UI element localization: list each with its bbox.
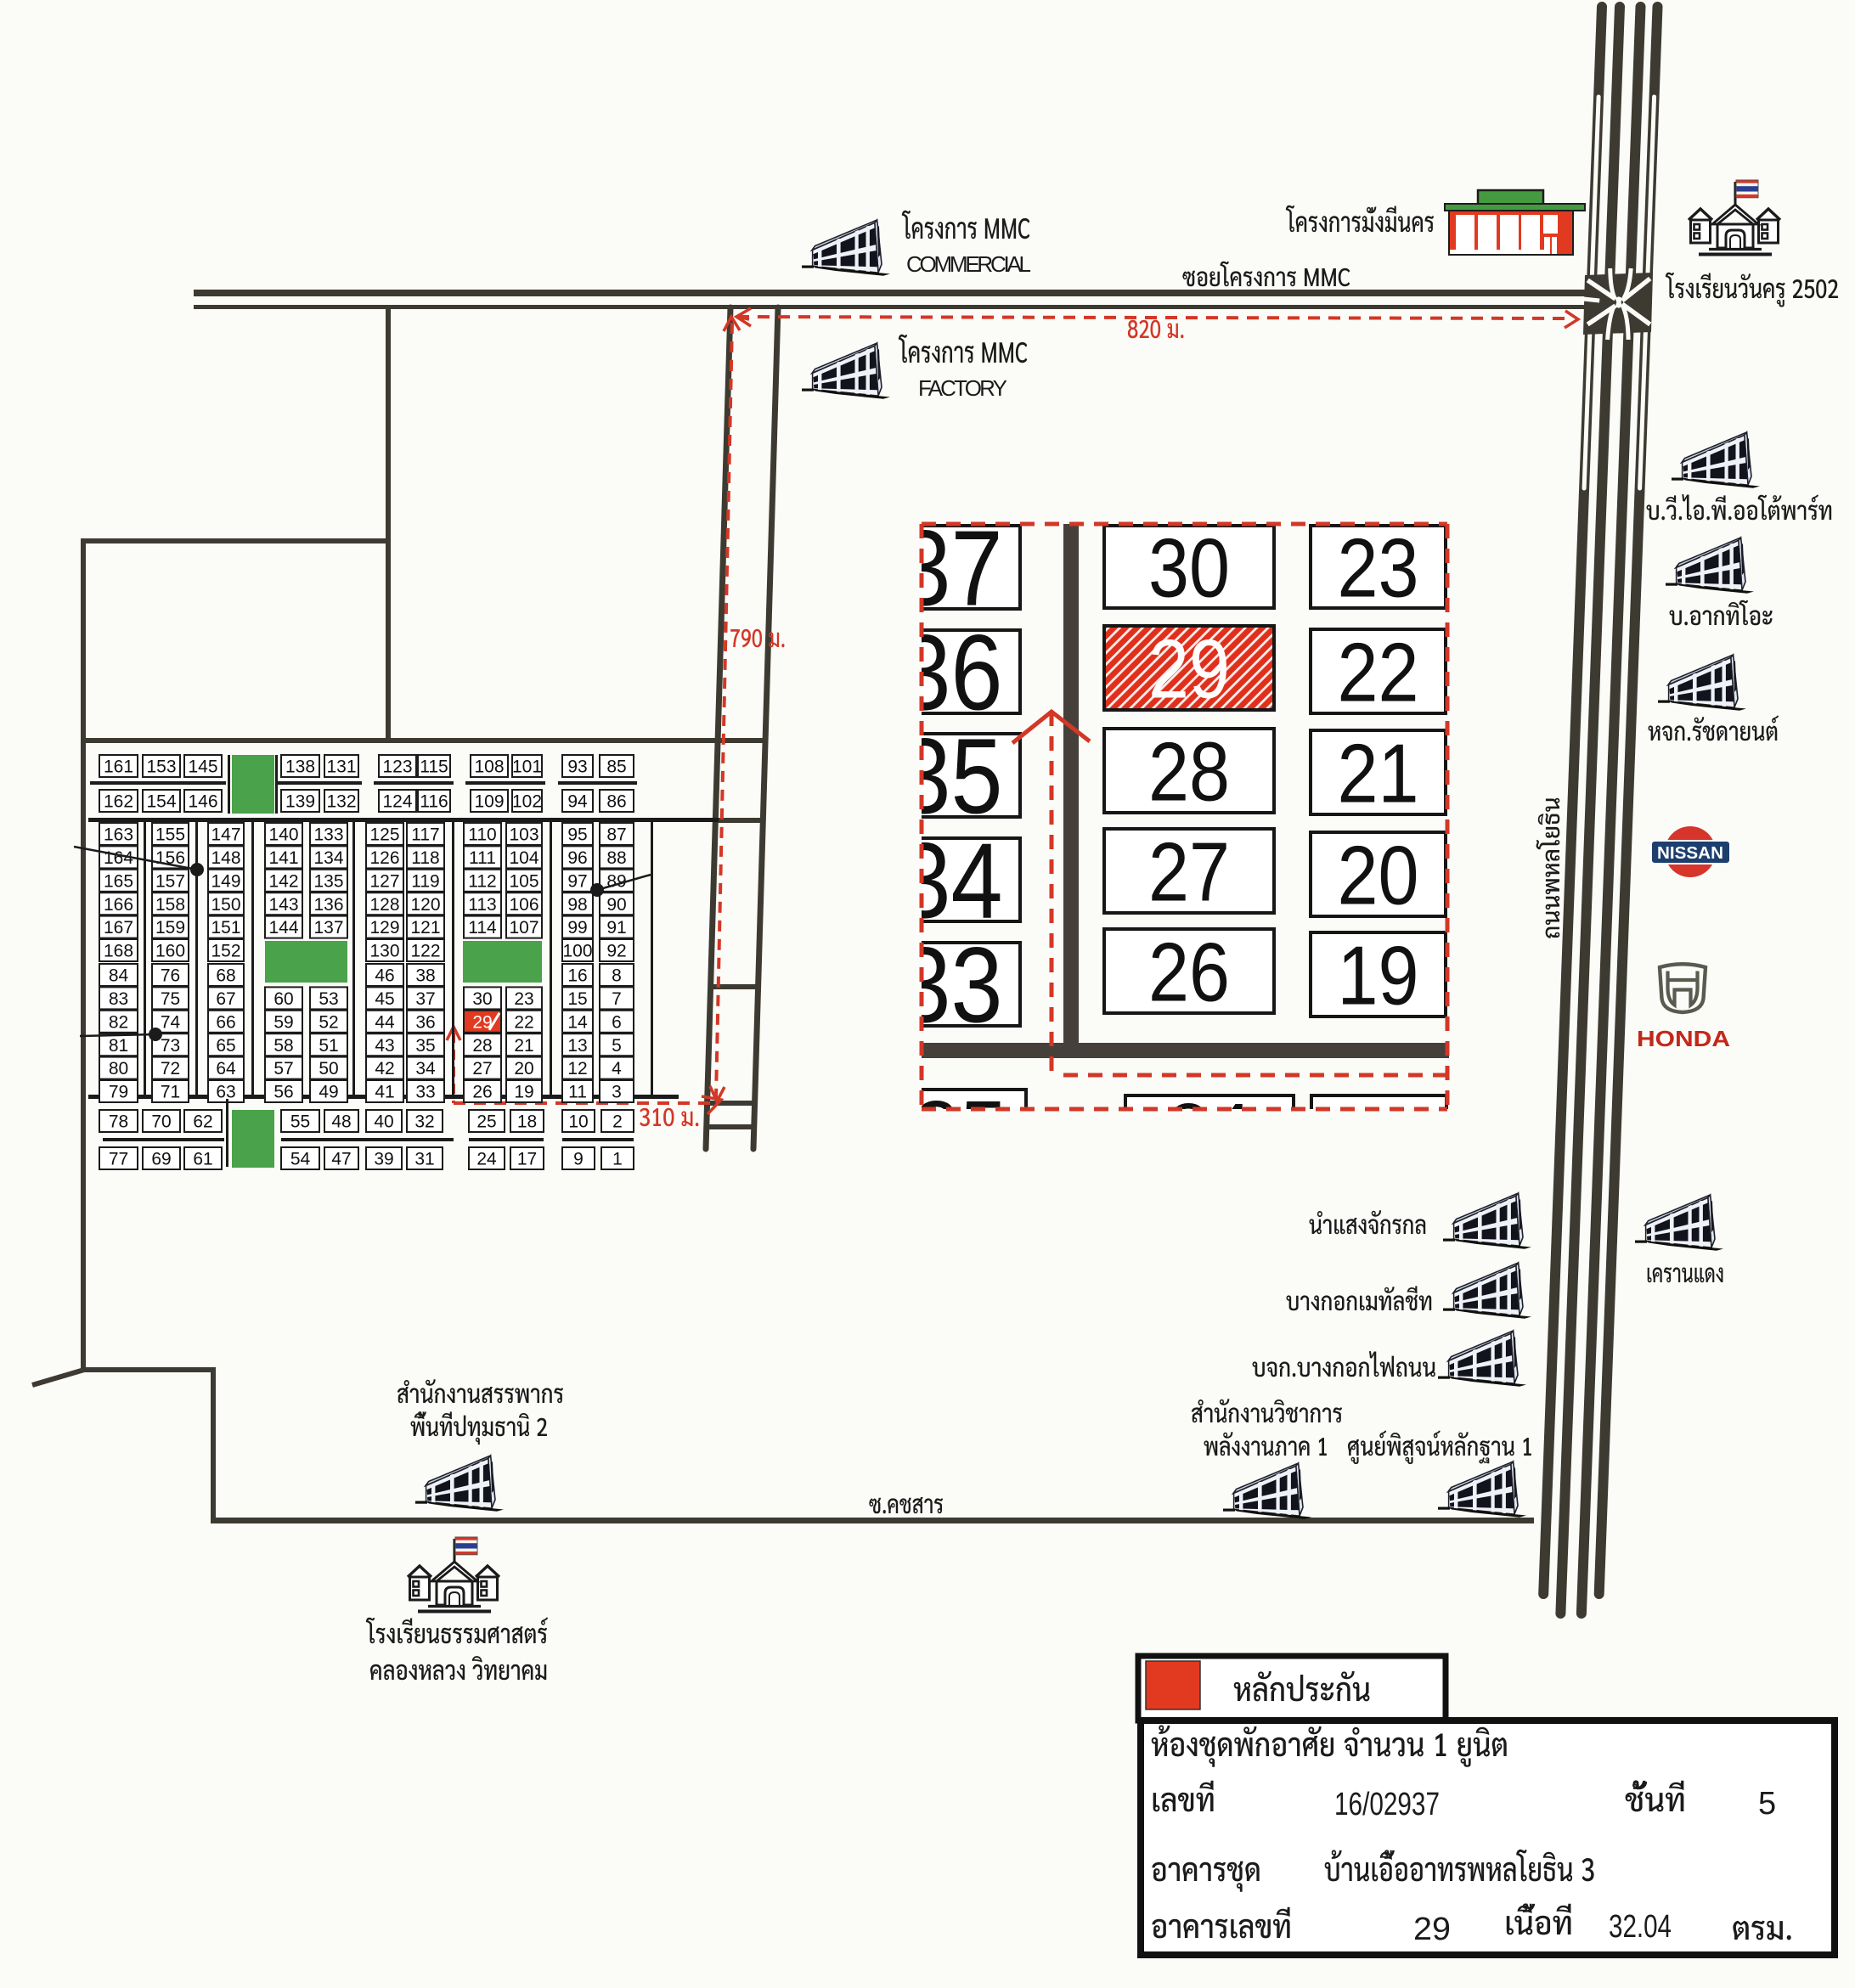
svg-text:102: 102	[512, 792, 542, 812]
svg-text:24: 24	[476, 1150, 497, 1169]
svg-text:163: 163	[104, 825, 133, 845]
svg-text:143: 143	[268, 895, 298, 915]
svg-text:30: 30	[1148, 521, 1230, 614]
svg-text:28: 28	[1148, 724, 1230, 818]
svg-text:54: 54	[290, 1150, 311, 1169]
svg-text:34: 34	[415, 1059, 436, 1078]
svg-text:61: 61	[193, 1150, 212, 1169]
svg-text:82: 82	[109, 1012, 128, 1032]
svg-text:22: 22	[1338, 625, 1419, 718]
svg-text:94: 94	[567, 792, 588, 812]
svg-text:8: 8	[612, 966, 622, 986]
svg-text:153: 153	[146, 757, 176, 777]
svg-text:71: 71	[161, 1083, 180, 1102]
svg-text:19: 19	[1338, 928, 1419, 1022]
svg-text:27: 27	[472, 1059, 492, 1078]
svg-text:149: 149	[211, 871, 240, 891]
svg-text:26: 26	[472, 1083, 492, 1102]
svg-text:161: 161	[104, 757, 133, 777]
svg-text:70: 70	[151, 1112, 171, 1132]
svg-text:67: 67	[216, 989, 235, 1009]
svg-text:26: 26	[1148, 925, 1230, 1018]
svg-text:28: 28	[472, 1036, 492, 1056]
svg-text:23: 23	[514, 989, 533, 1009]
svg-text:164: 164	[104, 848, 133, 868]
svg-text:105: 105	[509, 871, 538, 891]
svg-text:107: 107	[509, 918, 538, 938]
svg-text:25: 25	[476, 1112, 496, 1132]
svg-text:91: 91	[606, 918, 626, 938]
svg-text:96: 96	[567, 848, 587, 868]
svg-text:126: 126	[369, 848, 399, 868]
svg-text:20: 20	[1338, 828, 1419, 921]
svg-text:19: 19	[514, 1083, 533, 1102]
svg-text:118: 118	[411, 848, 439, 868]
svg-text:5: 5	[612, 1036, 622, 1056]
svg-text:111: 111	[469, 848, 496, 868]
svg-text:55: 55	[290, 1112, 310, 1132]
svg-text:68: 68	[216, 966, 235, 986]
svg-text:133: 133	[313, 825, 343, 845]
svg-text:51: 51	[319, 1036, 338, 1056]
svg-text:32: 32	[414, 1112, 434, 1132]
svg-text:160: 160	[155, 942, 185, 961]
svg-text:122: 122	[410, 942, 440, 961]
svg-text:62: 62	[193, 1112, 212, 1132]
svg-text:113: 113	[468, 895, 496, 915]
svg-text:86: 86	[606, 792, 626, 812]
svg-text:112: 112	[468, 871, 496, 891]
svg-text:165: 165	[104, 871, 133, 891]
svg-text:15: 15	[567, 989, 587, 1009]
svg-text:37: 37	[415, 989, 435, 1009]
svg-text:46: 46	[375, 966, 394, 986]
svg-text:101: 101	[512, 757, 542, 777]
svg-text:142: 142	[268, 871, 298, 891]
svg-text:154: 154	[146, 792, 176, 812]
svg-text:83: 83	[109, 989, 128, 1009]
svg-text:141: 141	[268, 848, 298, 868]
svg-text:100: 100	[562, 942, 592, 961]
svg-text:1: 1	[612, 1150, 623, 1169]
svg-text:48: 48	[331, 1112, 351, 1132]
svg-text:98: 98	[567, 895, 587, 915]
svg-text:45: 45	[375, 989, 394, 1009]
svg-text:64: 64	[216, 1059, 236, 1078]
svg-text:74: 74	[161, 1012, 181, 1032]
svg-text:120: 120	[410, 895, 440, 915]
svg-text:69: 69	[151, 1150, 171, 1169]
svg-text:115: 115	[420, 757, 448, 777]
svg-text:35: 35	[415, 1036, 435, 1056]
svg-text:31: 31	[414, 1150, 434, 1169]
svg-text:FACTORY: FACTORY	[918, 375, 1007, 401]
svg-text:20: 20	[514, 1059, 533, 1078]
svg-text:167: 167	[104, 918, 133, 938]
svg-text:11: 11	[568, 1083, 587, 1102]
svg-text:14: 14	[567, 1012, 588, 1032]
svg-text:108: 108	[474, 757, 504, 777]
svg-text:139: 139	[285, 792, 315, 812]
svg-text:148: 148	[211, 848, 240, 868]
svg-text:138: 138	[285, 757, 315, 777]
svg-text:16: 16	[567, 966, 587, 986]
svg-text:30: 30	[472, 989, 492, 1009]
svg-text:39: 39	[374, 1150, 393, 1169]
svg-text:150: 150	[211, 895, 240, 915]
svg-text:93: 93	[567, 757, 587, 777]
svg-text:17: 17	[517, 1150, 537, 1169]
svg-text:72: 72	[161, 1059, 180, 1078]
svg-text:75: 75	[161, 989, 180, 1009]
svg-text:16/02937: 16/02937	[1334, 1787, 1440, 1822]
svg-text:131: 131	[326, 757, 356, 777]
svg-text:47: 47	[331, 1150, 351, 1169]
svg-text:27: 27	[1148, 825, 1230, 918]
svg-text:85: 85	[606, 757, 626, 777]
svg-text:81: 81	[109, 1036, 128, 1056]
svg-text:159: 159	[155, 918, 185, 938]
svg-text:6: 6	[612, 1012, 622, 1032]
svg-text:44: 44	[375, 1012, 395, 1032]
svg-text:103: 103	[509, 825, 538, 845]
svg-text:110: 110	[468, 825, 496, 845]
svg-text:90: 90	[606, 895, 626, 915]
svg-text:132: 132	[326, 792, 356, 812]
svg-text:135: 135	[313, 871, 343, 891]
svg-text:38: 38	[415, 966, 435, 986]
svg-text:21: 21	[514, 1036, 533, 1056]
svg-text:57: 57	[273, 1059, 293, 1078]
svg-text:97: 97	[567, 871, 587, 891]
svg-text:9: 9	[573, 1150, 584, 1169]
svg-text:53: 53	[319, 989, 338, 1009]
svg-text:76: 76	[161, 966, 180, 986]
svg-text:56: 56	[273, 1083, 293, 1102]
svg-text:95: 95	[567, 825, 587, 845]
svg-text:13: 13	[567, 1036, 587, 1056]
svg-text:4: 4	[612, 1059, 622, 1078]
svg-text:125: 125	[369, 825, 399, 845]
svg-text:166: 166	[104, 895, 133, 915]
svg-text:58: 58	[273, 1036, 293, 1056]
svg-text:145: 145	[188, 757, 217, 777]
svg-text:40: 40	[374, 1112, 393, 1132]
svg-text:23: 23	[1338, 521, 1419, 614]
svg-text:157: 157	[155, 871, 185, 891]
svg-text:79: 79	[109, 1083, 128, 1102]
svg-text:130: 130	[369, 942, 399, 961]
svg-text:104: 104	[509, 848, 538, 868]
svg-text:168: 168	[104, 942, 133, 961]
svg-text:66: 66	[216, 1012, 235, 1032]
svg-text:29: 29	[472, 1012, 492, 1032]
svg-text:117: 117	[411, 825, 439, 845]
svg-text:21: 21	[1338, 726, 1419, 819]
svg-text:128: 128	[369, 895, 399, 915]
svg-text:99: 99	[567, 918, 587, 938]
svg-text:87: 87	[606, 825, 626, 845]
svg-text:78: 78	[109, 1112, 128, 1132]
svg-text:73: 73	[161, 1036, 180, 1056]
svg-text:144: 144	[268, 918, 298, 938]
svg-text:10: 10	[568, 1112, 588, 1132]
svg-text:60: 60	[273, 989, 293, 1009]
svg-text:114: 114	[468, 918, 497, 938]
svg-text:121: 121	[410, 918, 440, 938]
svg-text:65: 65	[216, 1036, 235, 1056]
svg-text:116: 116	[420, 792, 448, 812]
svg-text:124: 124	[382, 792, 412, 812]
svg-text:43: 43	[375, 1036, 394, 1056]
svg-text:NISSAN: NISSAN	[1657, 844, 1723, 863]
svg-text:146: 146	[188, 792, 217, 812]
svg-text:92: 92	[606, 942, 626, 961]
svg-text:134: 134	[313, 848, 343, 868]
svg-text:136: 136	[313, 895, 343, 915]
svg-text:3: 3	[612, 1083, 622, 1102]
svg-text:52: 52	[319, 1012, 338, 1032]
svg-text:7: 7	[612, 989, 622, 1009]
svg-text:50: 50	[319, 1059, 338, 1078]
svg-text:127: 127	[369, 871, 399, 891]
svg-text:88: 88	[606, 848, 626, 868]
svg-text:109: 109	[474, 792, 504, 812]
svg-text:18: 18	[517, 1112, 537, 1132]
svg-text:137: 137	[313, 918, 343, 938]
svg-text:59: 59	[273, 1012, 293, 1032]
svg-text:106: 106	[509, 895, 538, 915]
svg-text:129: 129	[369, 918, 399, 938]
svg-text:80: 80	[109, 1059, 128, 1078]
svg-text:41: 41	[375, 1083, 394, 1102]
svg-text:155: 155	[155, 825, 185, 845]
svg-text:152: 152	[211, 942, 240, 961]
svg-text:119: 119	[411, 871, 439, 891]
svg-text:HONDA: HONDA	[1637, 1026, 1730, 1051]
svg-text:84: 84	[109, 966, 129, 986]
svg-text:29: 29	[1148, 622, 1230, 715]
svg-text:2: 2	[612, 1112, 623, 1132]
svg-text:140: 140	[268, 825, 298, 845]
svg-text:5: 5	[1758, 1786, 1776, 1822]
svg-text:12: 12	[567, 1059, 587, 1078]
svg-text:33: 33	[415, 1083, 435, 1102]
svg-text:158: 158	[155, 895, 185, 915]
svg-text:22: 22	[514, 1012, 533, 1032]
svg-text:32.04: 32.04	[1609, 1909, 1672, 1945]
svg-text:151: 151	[211, 918, 240, 938]
svg-text:77: 77	[109, 1150, 128, 1169]
svg-text:COMMERCIAL: COMMERCIAL	[906, 251, 1031, 277]
svg-text:42: 42	[375, 1059, 394, 1078]
svg-text:29: 29	[1413, 1912, 1451, 1947]
svg-text:147: 147	[211, 825, 240, 845]
svg-text:162: 162	[104, 792, 133, 812]
svg-text:123: 123	[382, 757, 412, 777]
svg-text:36: 36	[415, 1012, 435, 1032]
svg-text:49: 49	[319, 1083, 338, 1102]
